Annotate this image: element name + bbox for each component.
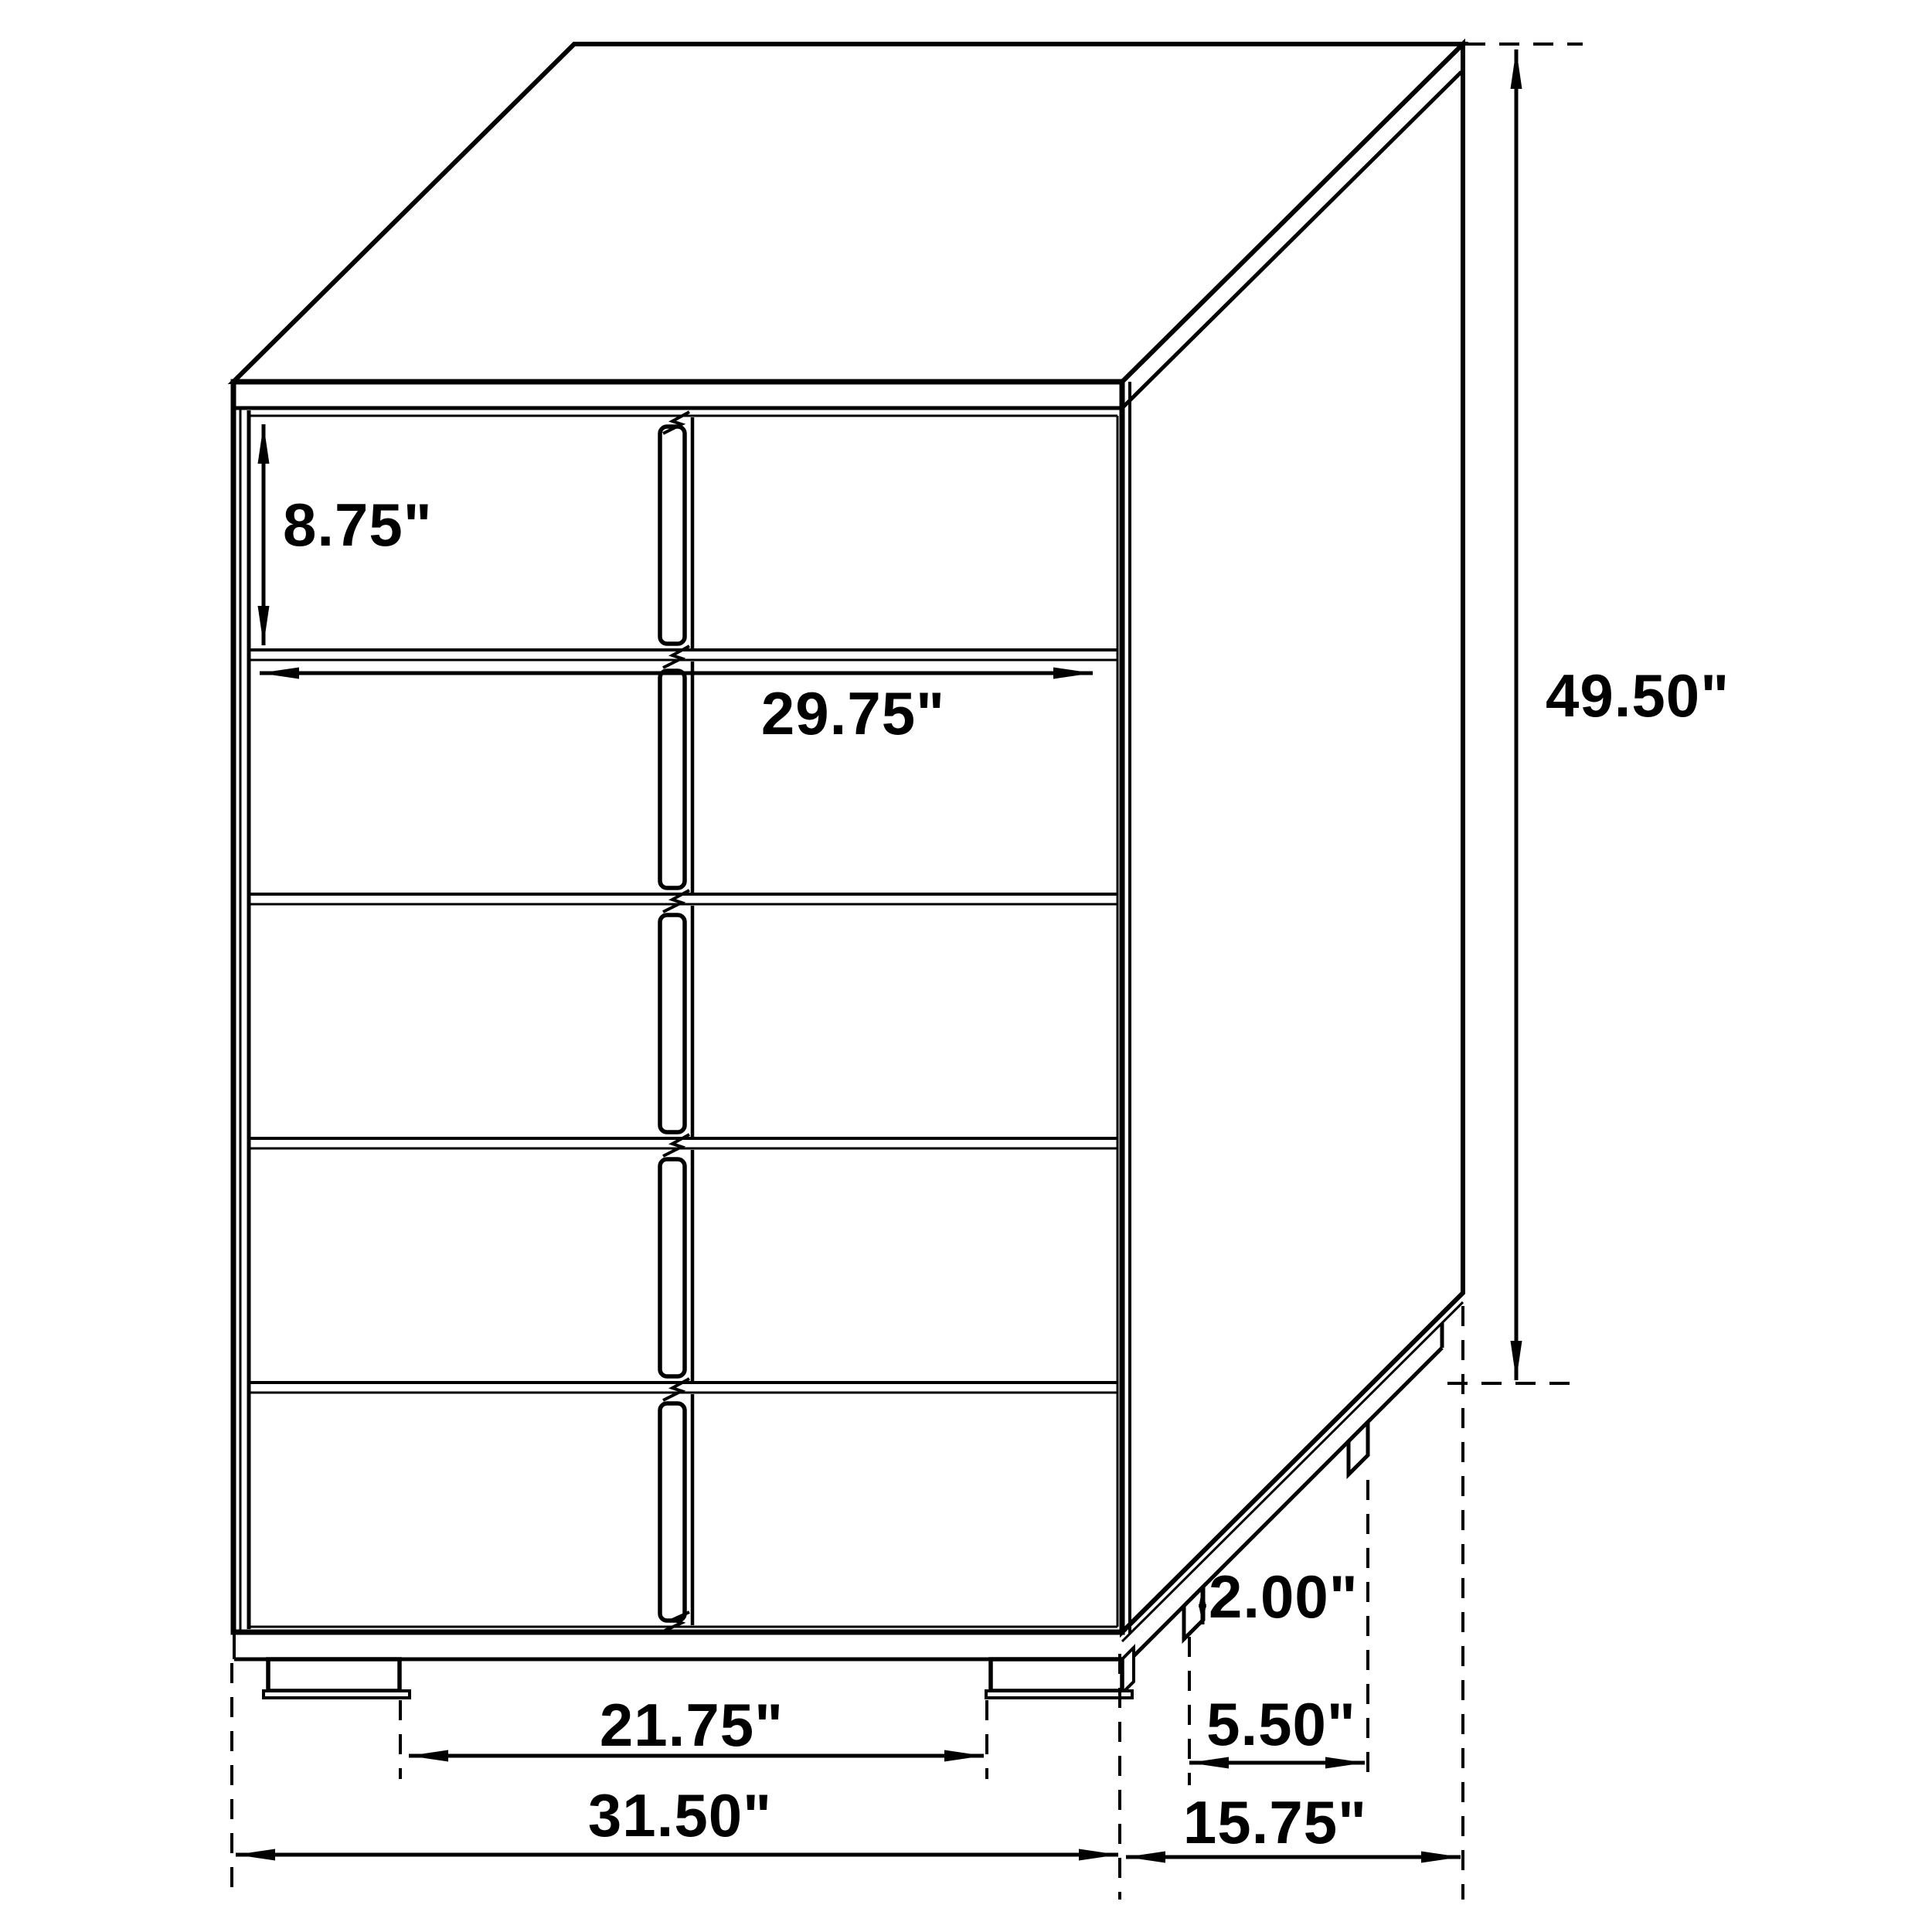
dimension-label-front-leg-spacing: 21.75" (600, 1695, 784, 1755)
dimension-label-side-leg-spacing: 5.50" (1206, 1694, 1356, 1754)
handle-strip-row5 (660, 1403, 685, 1621)
side-front-leg (1184, 1587, 1203, 1639)
dimension-diagram: 8.75" 29.75" 49.50" 2.00" 5.50" 21.75" 3… (0, 0, 1932, 1932)
dimension-label-overall-height: 49.50" (1546, 665, 1730, 726)
dimension-label-drawer-height: 8.75" (283, 495, 433, 555)
front-left-leg (268, 1659, 400, 1691)
drawer-handle-strips (660, 427, 685, 1621)
dimension-label-overall-depth: 15.75" (1183, 1792, 1367, 1852)
side-back-leg (1349, 1422, 1368, 1475)
handle-strip-row1 (660, 427, 685, 644)
front-face (233, 382, 1122, 1632)
handle-strip-row3 (660, 915, 685, 1132)
dimension-label-drawer-width: 29.75" (761, 683, 945, 743)
base-and-legs (234, 1632, 1134, 1698)
front-right-leg (991, 1659, 1122, 1691)
dresser-line-drawing (0, 0, 1932, 1932)
dimension-label-overall-width: 31.50" (588, 1785, 772, 1845)
dimension-label-leg-height: 2.00" (1209, 1566, 1359, 1627)
handle-strip-row2 (660, 671, 685, 888)
handle-strip-row4 (660, 1159, 685, 1376)
